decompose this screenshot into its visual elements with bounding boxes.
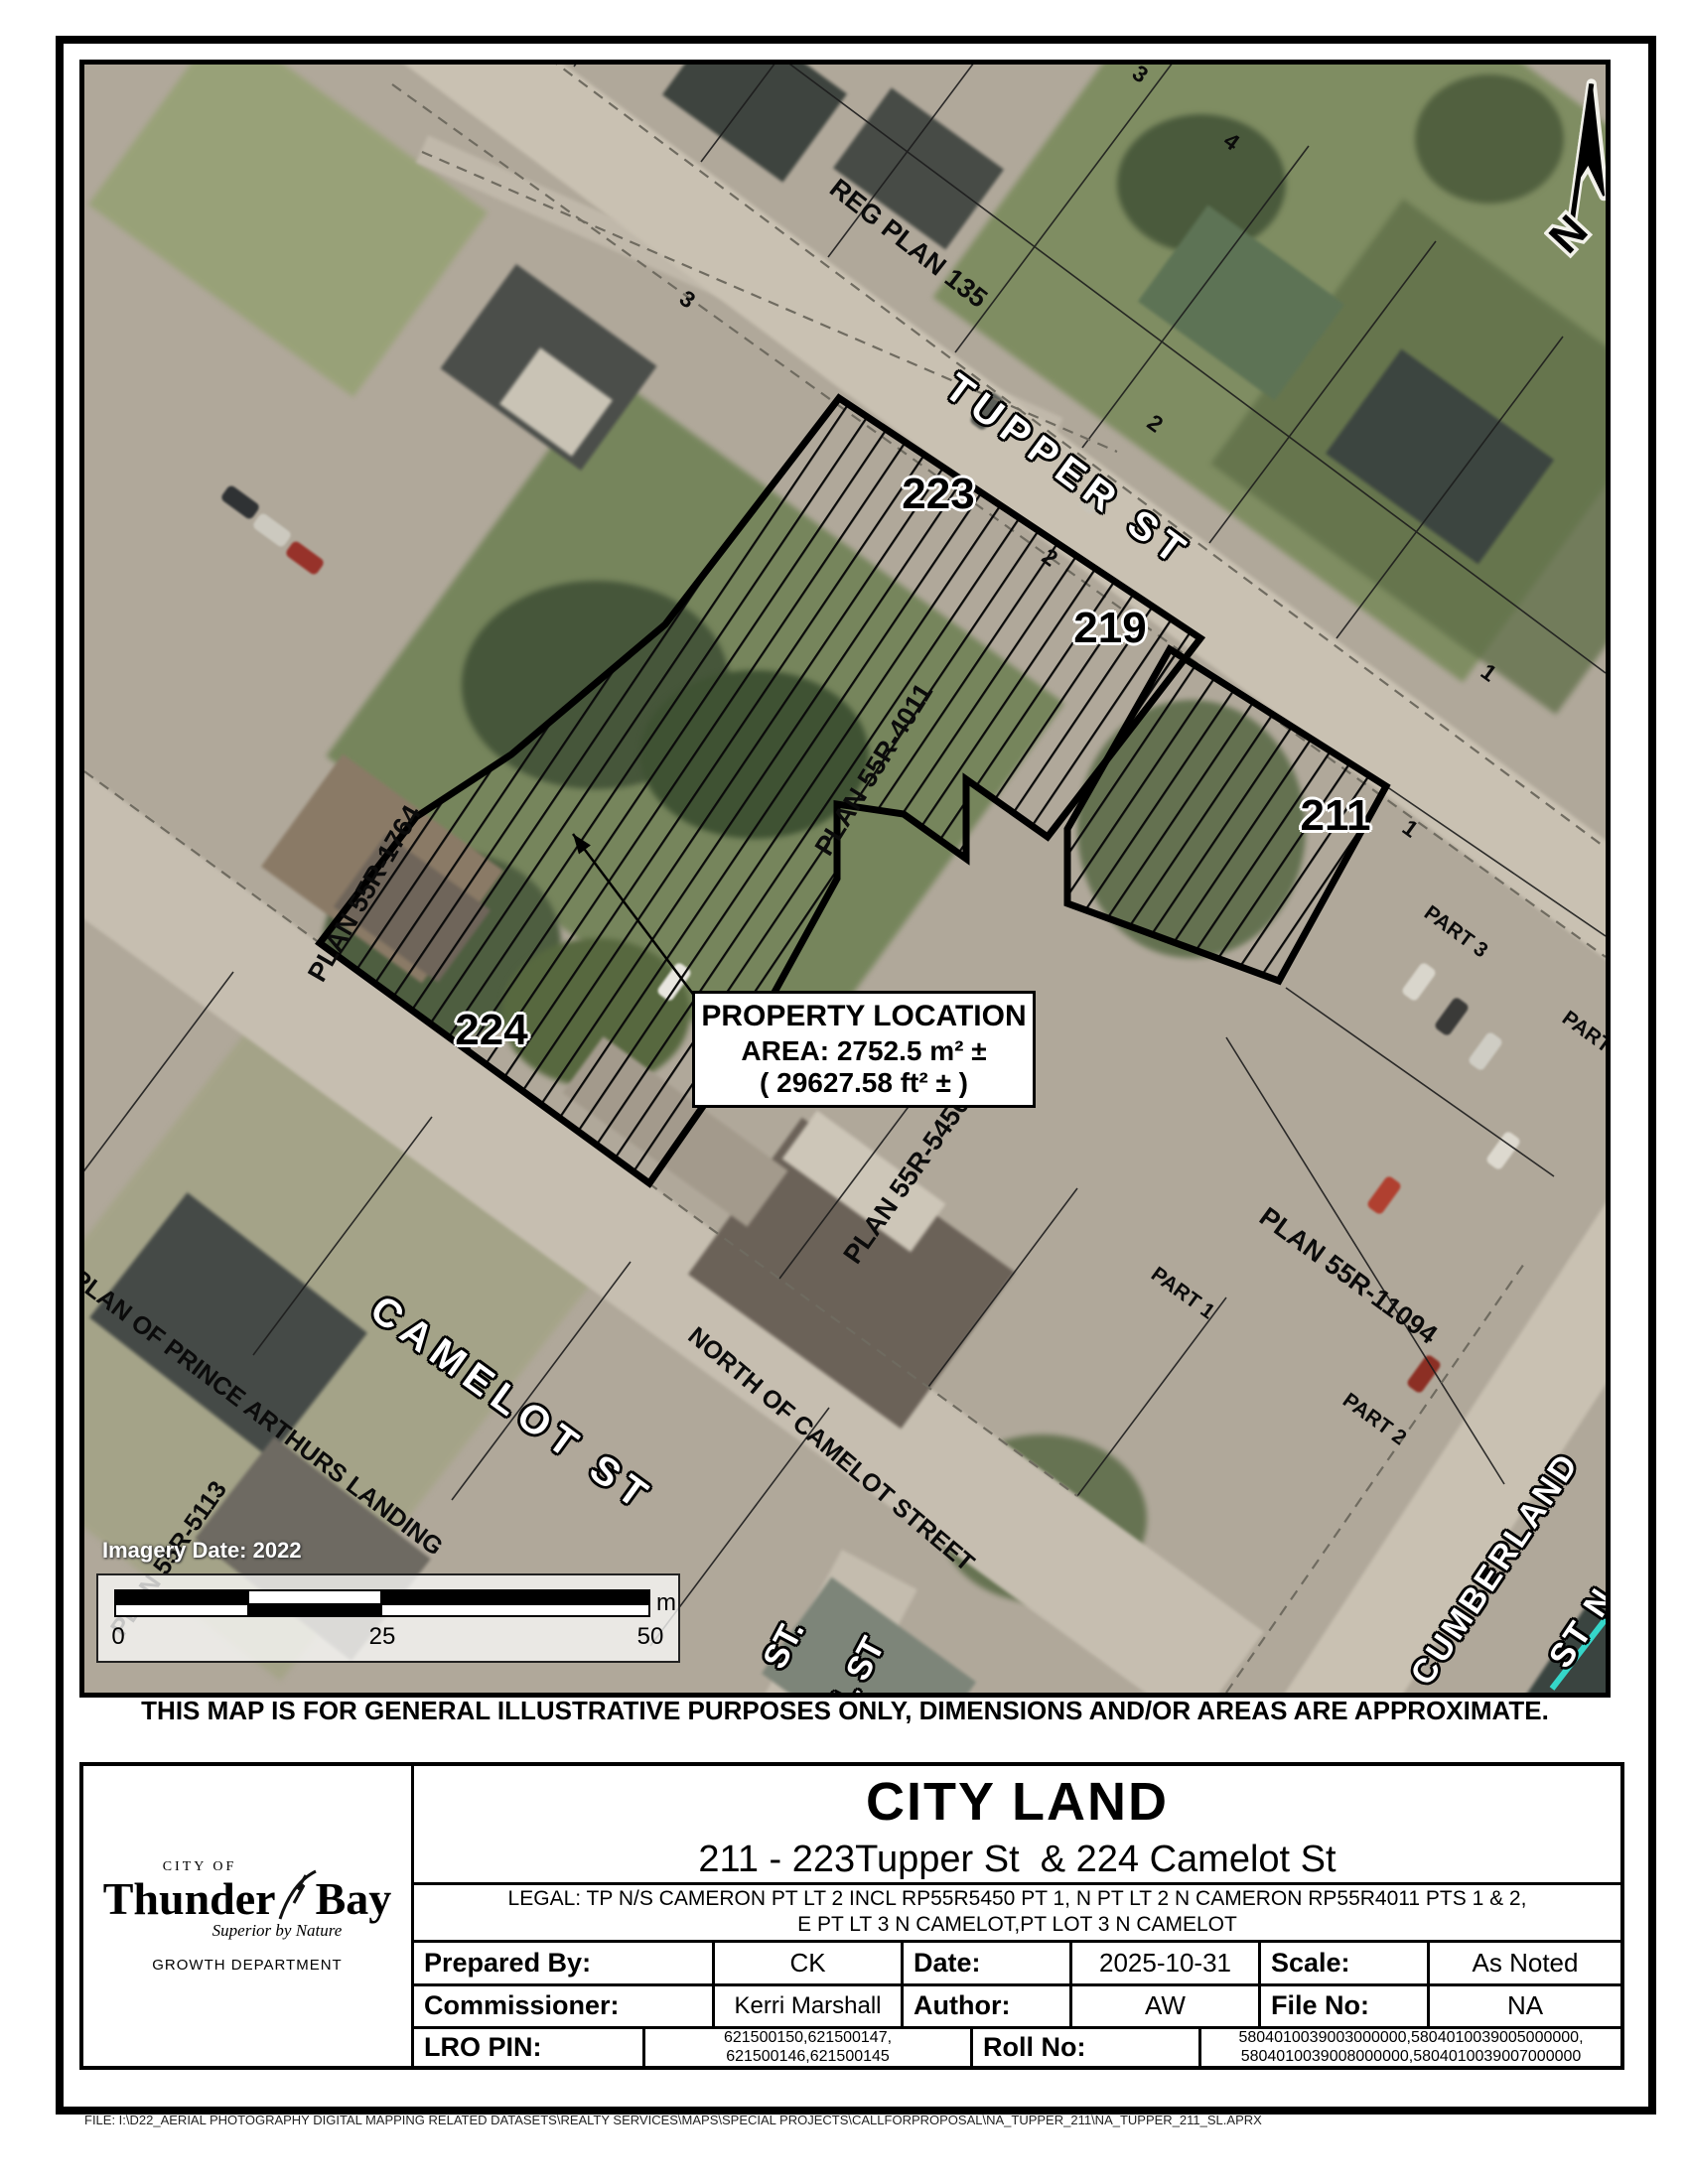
title-block-row-pins: LRO PIN: 621500150,621500147, 621500146,… (414, 2026, 1620, 2066)
commissioner-value: Kerri Marshall (712, 1986, 901, 2027)
roll-no-line2: 5804010039008000000,5804010039007000000 (1241, 2048, 1582, 2066)
disclaimer-text: THIS MAP IS FOR GENERAL ILLUSTRATIVE PUR… (79, 1696, 1611, 1726)
scale-tick-0: 0 (111, 1623, 124, 1651)
map-viewport: TUPPER ST CAMELOT ST CUMBERLAND ST N ST.… (79, 60, 1611, 1698)
aerial-imagery: TUPPER ST CAMELOT ST CUMBERLAND ST N ST.… (84, 65, 1606, 1693)
roll-no-line1: 5804010039003000000,5804010039005000000, (1238, 2029, 1583, 2047)
north-arrow-letter: N (1544, 206, 1598, 263)
logo-swoosh-icon (274, 1869, 318, 1925)
address-219: 219 (1073, 606, 1146, 651)
callout-title: PROPERTY LOCATION (699, 1000, 1029, 1033)
logo-bay: Bay (316, 1872, 392, 1925)
file-no-label: File No: (1258, 1986, 1427, 2027)
legal-line-2: E PT LT 3 N CAMELOT,PT LOT 3 N CAMELOT (797, 1912, 1237, 1938)
address-223: 223 (902, 472, 974, 517)
author-value: AW (1069, 1986, 1258, 2027)
map-title: CITY LAND (414, 1766, 1620, 1838)
logo-department: GROWTH DEPARTMENT (152, 1957, 342, 1974)
organization-logo: CITY OF Thunder Bay Superior by Nature G… (83, 1766, 414, 2066)
prepared-by-value: CK (712, 1943, 901, 1983)
file-no-value: NA (1427, 1986, 1620, 2027)
address-211: 211 (1301, 793, 1371, 839)
date-value: 2025-10-31 (1069, 1943, 1258, 1983)
lro-pin-line2: 621500146,621500145 (726, 2048, 890, 2066)
commissioner-label: Commissioner: (414, 1986, 712, 2027)
legal-line-1: LEGAL: TP N/S CAMERON PT LT 2 INCL RP55R… (508, 1886, 1527, 1912)
logo-tagline: Superior by Nature (212, 1921, 343, 1941)
scale-value: As Noted (1427, 1943, 1620, 1983)
lro-pin-line1: 621500150,621500147, (724, 2029, 892, 2047)
logo-thunder: Thunder (103, 1872, 276, 1925)
callout-area-metric: AREA: 2752.5 m² ± (699, 1035, 1029, 1067)
map-subtitle: 211 - 223Tupper St & 224 Camelot St (414, 1838, 1620, 1883)
file-path: FILE: I:\D22_AERIAL PHOTOGRAPHY DIGITAL … (84, 2113, 1262, 2127)
imagery-date: Imagery Date: 2022 (102, 1538, 302, 1564)
author-label: Author: (901, 1986, 1069, 2027)
scale-bar-graphic (114, 1589, 650, 1617)
logo-wordmark: Thunder Bay (103, 1869, 392, 1925)
prepared-by-label: Prepared By: (414, 1943, 712, 1983)
address-224: 224 (455, 1008, 527, 1053)
scale-tick-50: 50 (637, 1623, 664, 1651)
north-arrow: N (1544, 72, 1606, 291)
scale-unit: m (656, 1589, 676, 1617)
scale-bar: 0 25 50 m (96, 1573, 680, 1663)
callout-area-imperial: ( 29627.58 ft² ± ) (699, 1067, 1029, 1099)
roll-no-value: 5804010039003000000,5804010039005000000,… (1198, 2029, 1620, 2066)
date-label: Date: (901, 1943, 1069, 1983)
scale-tick-25: 25 (369, 1623, 396, 1651)
title-block: CITY OF Thunder Bay Superior by Nature G… (79, 1762, 1624, 2070)
lro-pin-label: LRO PIN: (414, 2029, 642, 2066)
legal-description: LEGAL: TP N/S CAMERON PT LT 2 INCL RP55R… (414, 1882, 1620, 1940)
title-block-row-prepared: Prepared By: CK Date: 2025-10-31 Scale: … (414, 1940, 1620, 1983)
property-location-callout: PROPERTY LOCATION AREA: 2752.5 m² ± ( 29… (692, 991, 1036, 1108)
roll-no-label: Roll No: (970, 2029, 1198, 2066)
scale-label: Scale: (1258, 1943, 1427, 1983)
lro-pin-value: 621500150,621500147, 621500146,621500145 (642, 2029, 970, 2066)
title-block-row-commissioner: Commissioner: Kerri Marshall Author: AW … (414, 1983, 1620, 2027)
